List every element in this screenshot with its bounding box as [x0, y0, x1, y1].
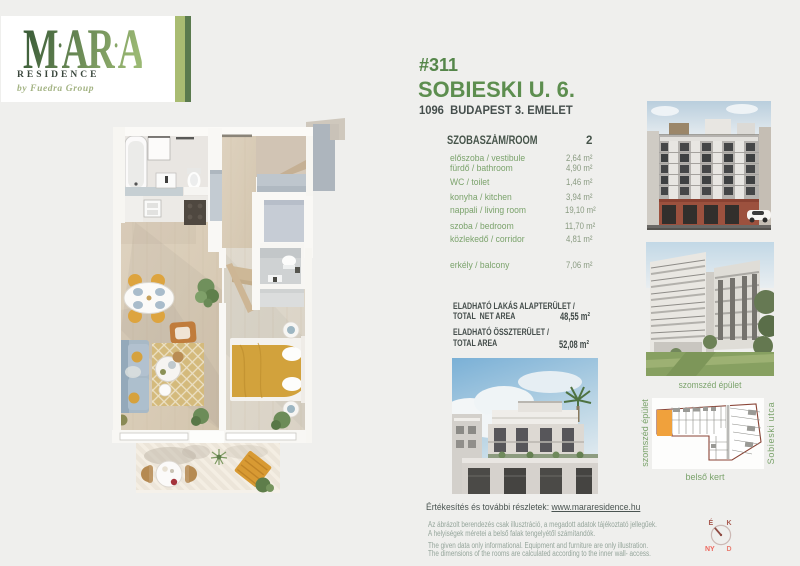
svg-text:É: É [709, 518, 714, 527]
svg-text:K: K [727, 520, 732, 527]
svg-text:D: D [727, 546, 732, 553]
svg-text:NY: NY [705, 546, 715, 553]
